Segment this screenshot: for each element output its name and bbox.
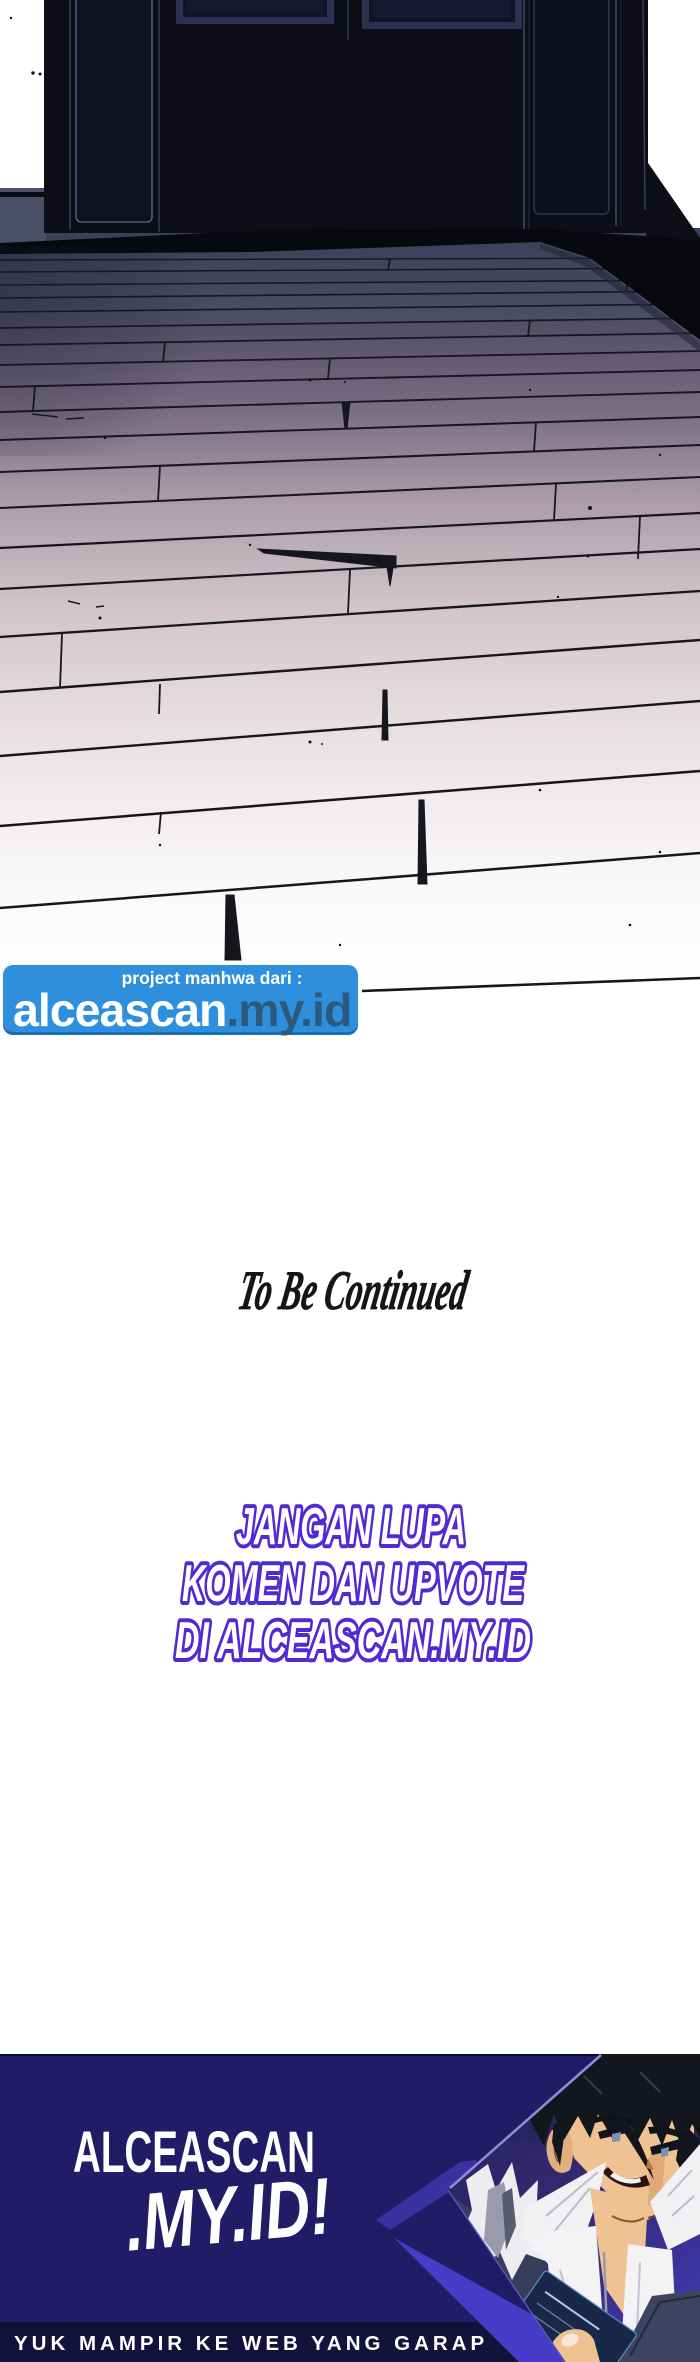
svg-text:JANGAN LUPA: JANGAN LUPA	[236, 1498, 466, 1556]
svg-text:.MY.ID!: .MY.ID!	[121, 2161, 334, 2268]
svg-text:YUK MAMPIR KE WEB YANG GARAP: YUK MAMPIR KE WEB YANG GARAP	[14, 2332, 488, 2355]
svg-text:KOMEN DAN UPVOTE: KOMEN DAN UPVOTE	[182, 1555, 525, 1613]
svg-text:DI ALCEASCAN.MY.ID: DI ALCEASCAN.MY.ID	[175, 1612, 531, 1670]
svg-text:To Be Continued: To Be Continued	[234, 1260, 473, 1322]
